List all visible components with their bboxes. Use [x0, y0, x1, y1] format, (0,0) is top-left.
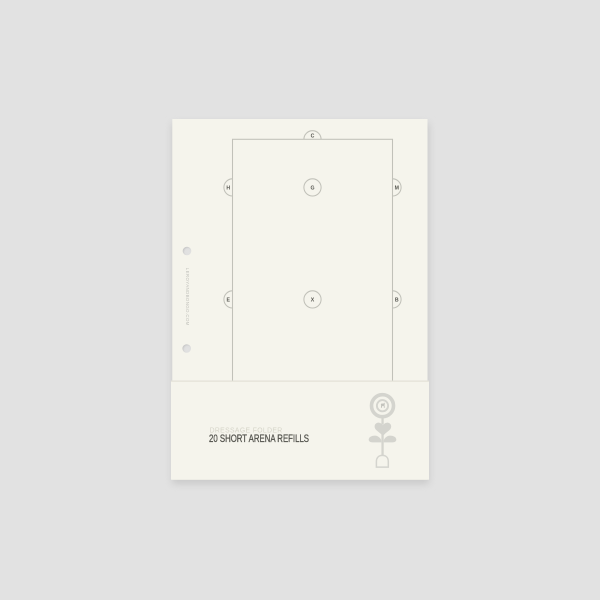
svg-text:20 SHORT ARENA REFILLS: 20 SHORT ARENA REFILLS	[209, 433, 309, 445]
svg-text:LEROYANDBONGO.COM: LEROYANDBONGO.COM	[184, 268, 190, 326]
svg-text:C: C	[311, 133, 315, 139]
svg-text:M: M	[395, 185, 399, 191]
svg-text:B: B	[395, 297, 399, 303]
svg-text:X: X	[311, 297, 315, 303]
svg-text:H: H	[226, 185, 230, 191]
svg-text:G: G	[310, 185, 314, 191]
svg-text:E: E	[226, 297, 230, 303]
